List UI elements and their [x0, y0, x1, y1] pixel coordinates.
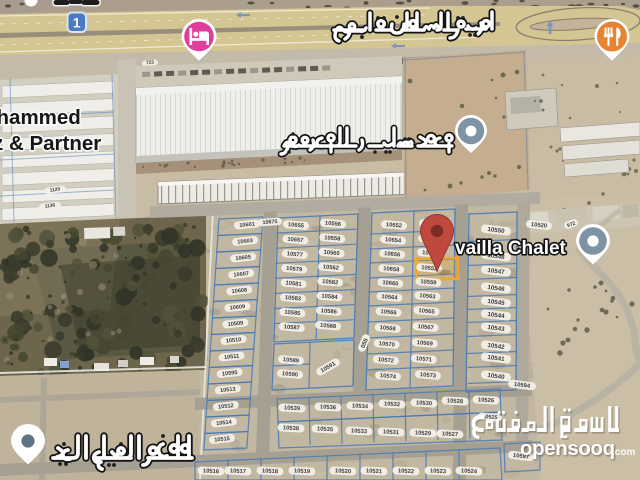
- svg-text:.com: .com: [612, 447, 635, 458]
- svg-text:10518: 10518: [262, 468, 279, 475]
- svg-text:10539: 10539: [284, 405, 301, 412]
- svg-text:10530: 10530: [416, 400, 432, 407]
- svg-text:1: 1: [73, 15, 81, 31]
- svg-text:10538: 10538: [283, 425, 300, 432]
- svg-text:10532: 10532: [384, 401, 400, 408]
- svg-text:10520: 10520: [335, 468, 351, 475]
- svg-text:10535: 10535: [317, 426, 334, 433]
- svg-text:10521: 10521: [366, 468, 383, 475]
- svg-text:z & Partner: z & Partner: [0, 132, 101, 155]
- svg-text:10675: 10675: [262, 219, 277, 226]
- svg-text:10528: 10528: [447, 398, 464, 405]
- svg-text:10531: 10531: [383, 429, 400, 436]
- svg-text:10529: 10529: [415, 430, 432, 437]
- svg-text:opensooq: opensooq: [520, 437, 615, 460]
- svg-text:10517: 10517: [230, 468, 246, 475]
- svg-text:vailla Chalet: vailla Chalet: [455, 238, 567, 259]
- svg-text:10516: 10516: [203, 468, 220, 475]
- svg-text:10534: 10534: [352, 403, 369, 410]
- svg-text:10524: 10524: [461, 468, 478, 475]
- svg-text:10523: 10523: [430, 468, 447, 475]
- svg-text:10519: 10519: [294, 468, 311, 475]
- svg-text:ohammed: ohammed: [0, 106, 81, 129]
- svg-text:10533: 10533: [351, 428, 368, 435]
- svg-text:10526: 10526: [478, 397, 495, 404]
- svg-text:10527: 10527: [442, 431, 458, 438]
- svg-text:10522: 10522: [398, 468, 414, 475]
- svg-text:10536: 10536: [320, 404, 337, 411]
- svg-text:723: 723: [146, 59, 155, 66]
